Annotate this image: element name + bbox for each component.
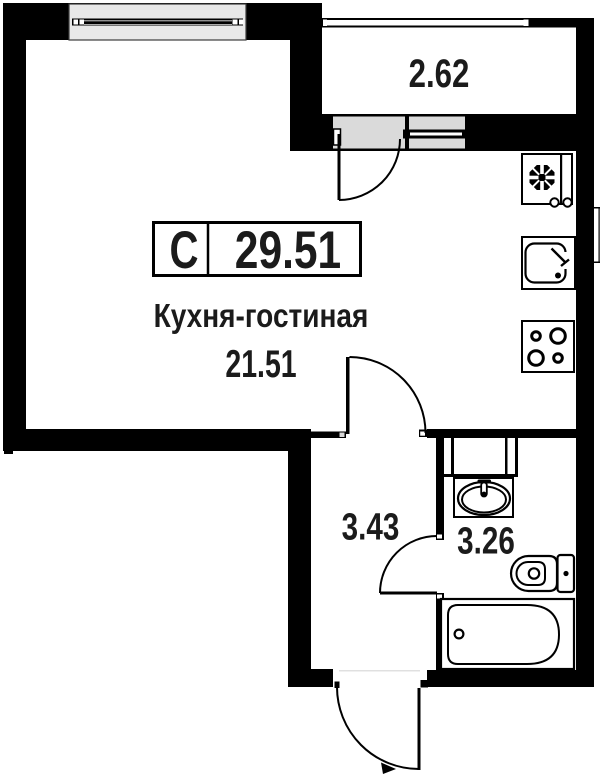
svg-text:Кухня-гостиная: Кухня-гостиная <box>154 298 369 335</box>
svg-text:21.51: 21.51 <box>225 343 296 386</box>
svg-text:3.26: 3.26 <box>457 520 515 562</box>
svg-text:3.43: 3.43 <box>342 506 400 548</box>
svg-text:2.62: 2.62 <box>409 51 470 96</box>
svg-text:29.51: 29.51 <box>235 222 341 280</box>
svg-text:С: С <box>169 221 198 279</box>
